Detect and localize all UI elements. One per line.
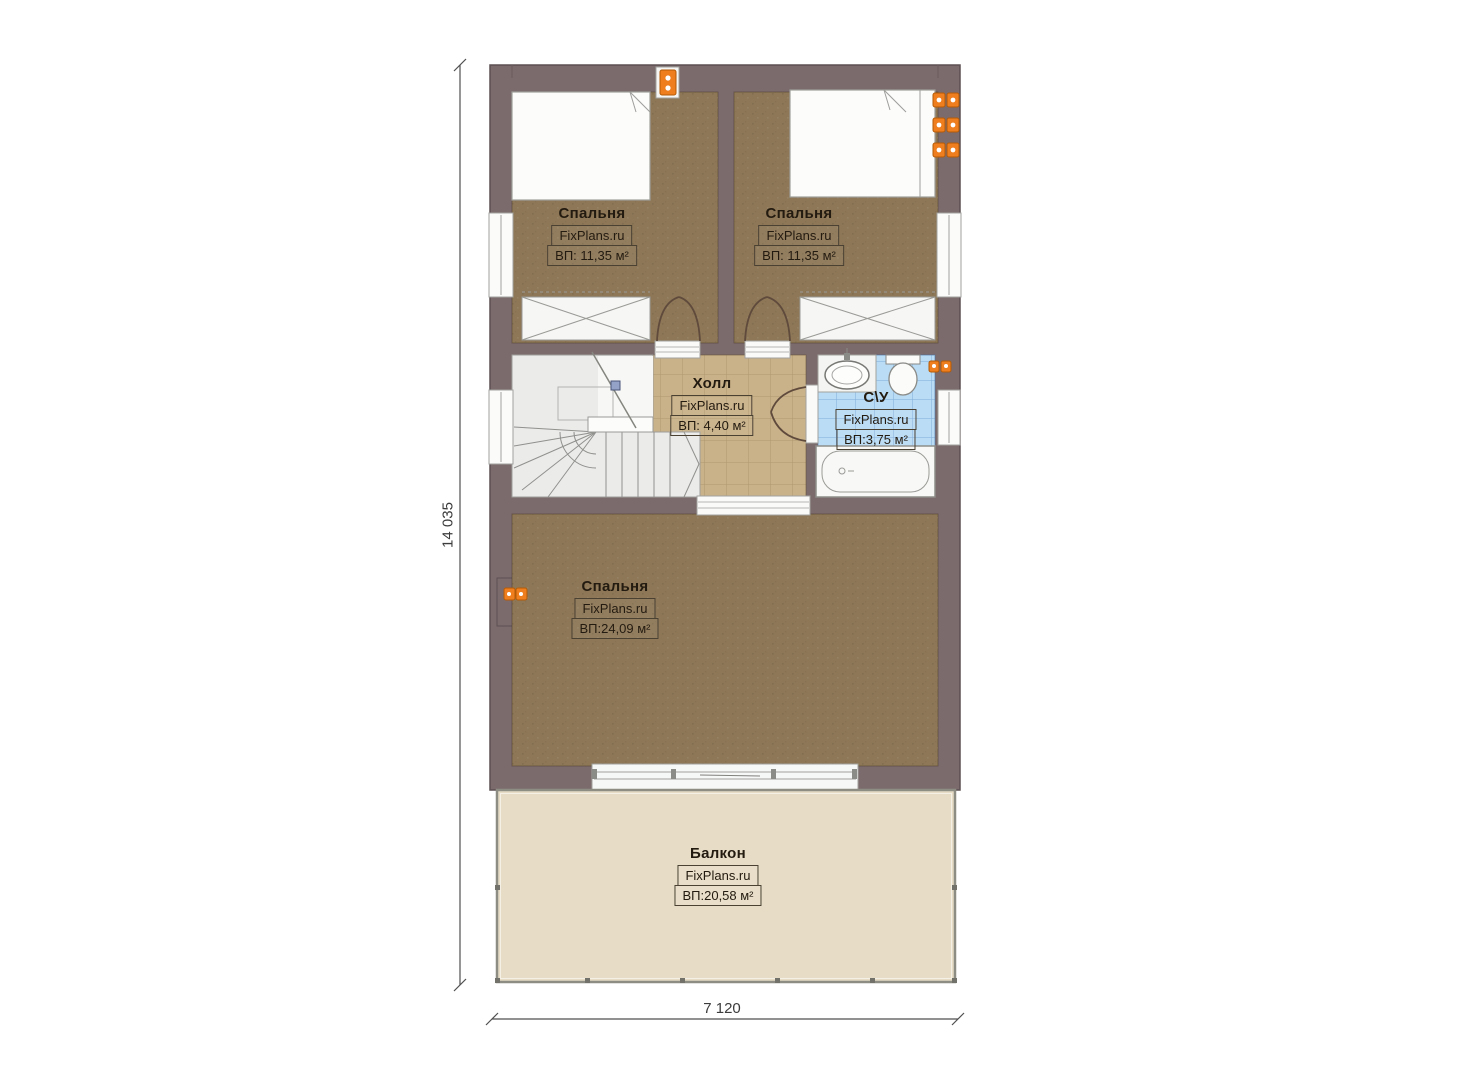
room-area: ВП:24,09 м² [571,618,658,639]
room-area: ВП: 11,35 м² [547,245,637,266]
stair-marker [611,381,620,390]
wardrobe-right [800,292,935,340]
room-area: ВП:3,75 м² [836,429,916,450]
bed-top-left [512,92,650,200]
room-name: С\У [835,389,916,406]
room-name: Спальня [547,205,637,222]
watermark: FixPlans.ru [574,598,655,619]
bed-top-right [790,90,935,197]
dimension-width-label: 7 120 [703,1000,741,1017]
window-bathroom [938,390,960,445]
watermark: FixPlans.ru [835,409,916,430]
room-label-hall: Холл FixPlans.ru ВП: 4,40 м² [670,375,753,436]
room-label-balcony: Балкон FixPlans.ru ВП:20,58 м² [674,845,761,906]
room-area: ВП: 11,35 м² [754,245,844,266]
watermark: FixPlans.ru [671,395,752,416]
watermark: FixPlans.ru [758,225,839,246]
room-name: Спальня [754,205,844,222]
room-name: Балкон [674,845,761,862]
room-label-bedroom-top-right: Спальня FixPlans.ru ВП: 11,35 м² [754,205,844,266]
room-name: Холл [670,375,753,392]
floor-plan-graphic [0,0,1474,1080]
room-label-bathroom: С\У FixPlans.ru ВП:3,75 м² [835,389,916,450]
door-threshold-bathroom [806,385,818,443]
room-name: Спальня [571,578,658,595]
room-area: ВП:20,58 м² [674,885,761,906]
bathtub-icon [816,446,935,497]
heater-icon-top-wall [656,67,679,98]
watermark: FixPlans.ru [677,865,758,886]
room-label-bedroom-top-left: Спальня FixPlans.ru ВП: 11,35 м² [547,205,637,266]
balcony-sliding-door [592,764,858,790]
watermark: FixPlans.ru [551,225,632,246]
window-stairs [489,390,513,464]
door-threshold-bedroom-2 [745,341,790,358]
room-label-bedroom-large: Спальня FixPlans.ru ВП:24,09 м² [571,578,658,639]
room-area: ВП: 4,40 м² [670,415,753,436]
window-right-bedroom [937,213,961,297]
door-threshold-bedroom-1 [655,341,700,358]
opening-bedroom-large [697,496,810,515]
floor-plan-page: Спальня FixPlans.ru ВП: 11,35 м² Спальня… [0,0,1474,1080]
window-left-bedroom [489,213,513,297]
dimension-height-label: 14 035 [440,502,457,548]
wardrobe-left [522,292,650,340]
sink-icon [818,348,876,392]
